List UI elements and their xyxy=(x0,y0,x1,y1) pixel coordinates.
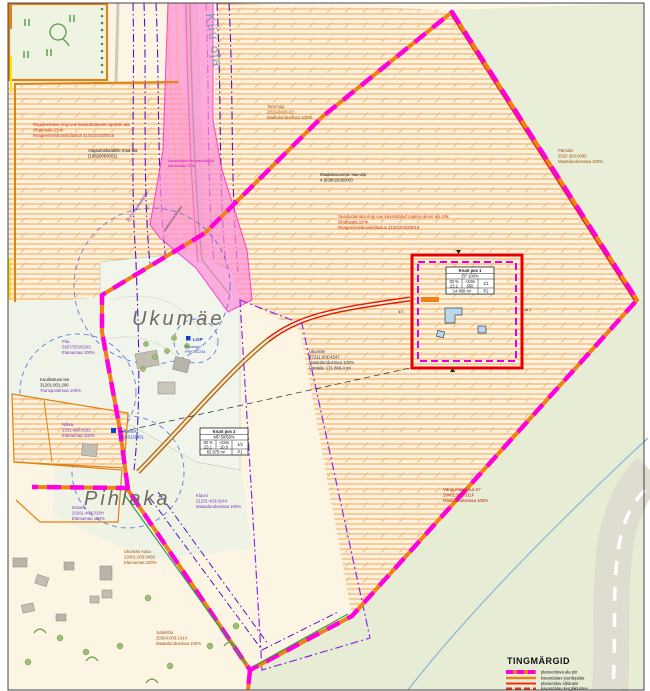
tammoja-1: Tammoja xyxy=(267,104,285,109)
ukumae-parcel-2: 97311:001:4547 xyxy=(309,355,340,360)
tree-symbol xyxy=(57,635,63,641)
edge-strip-orange xyxy=(8,3,12,29)
tammoja-2: 2819-0420-02 xyxy=(267,110,294,115)
measure-left: 4,0 xyxy=(398,309,404,314)
ukumae-label: Ukumäe xyxy=(132,308,224,330)
plan-map-page: LOP Puurkaev PRK001234 PUURK#1 PRK013145… xyxy=(0,0,650,691)
krunt1-subtitle: EP 100% xyxy=(462,274,479,279)
tree-symbol xyxy=(140,366,145,371)
krunt2-subtitle: MP 50/50% xyxy=(213,435,234,440)
jutilehtla-2: 29304:003:1414 xyxy=(156,636,188,641)
krunt2-c3: 1/2 xyxy=(237,442,243,447)
building xyxy=(64,562,74,570)
building xyxy=(100,566,112,580)
jutilehtla-1: Jutilehtla xyxy=(156,630,174,635)
tree-symbol xyxy=(25,659,31,665)
land-note-1: Maakasutuseta maa-ala xyxy=(320,172,366,177)
krunt2-area: 63 875 m² xyxy=(207,449,226,454)
vanga-1: Vängi maaüksus 57 xyxy=(443,487,481,492)
tree-symbol xyxy=(143,341,148,346)
dotura-2: 20291:403:018H xyxy=(72,511,104,516)
krunt1-code: P2 xyxy=(483,288,489,293)
vanga-3: Maatulundusmaa 100% xyxy=(443,498,488,503)
red-note-top-2: Ohutusala 23 m xyxy=(33,128,64,133)
planned-building xyxy=(436,330,444,337)
kuullastuse-2: 31201:001:206 xyxy=(40,383,69,388)
building xyxy=(102,590,112,598)
red-note-mid-1: Seadustamata ringi uue kavandatud rajati… xyxy=(338,214,449,219)
flare-label-2: laiendusala 12 m xyxy=(168,164,195,168)
tree-symbol xyxy=(207,643,213,649)
nolva-2: 2331:403:0181 xyxy=(62,428,91,433)
tree-symbol xyxy=(152,354,157,359)
substation-note-2: (19820063001) xyxy=(88,154,118,159)
tree-symbol xyxy=(233,623,239,629)
parnala-2: 2520 303:0085 xyxy=(558,154,587,159)
krunt2-code: P1 xyxy=(237,449,243,454)
nolva-1: Nõlva xyxy=(62,422,74,427)
road-edge xyxy=(116,3,118,84)
lop-label: LOP xyxy=(193,337,204,343)
pia-1: Piia xyxy=(62,339,70,344)
parnala-1: Pärnala xyxy=(558,148,573,153)
dotura-3: Elamumaa 100% xyxy=(72,516,105,521)
krunt1-c3: 1/1 xyxy=(483,281,489,286)
tree-symbol xyxy=(167,663,173,669)
road-stub-orange xyxy=(421,297,439,302)
krunt1-area: 14 800 m² xyxy=(453,288,472,293)
red-note-mid-3: Reageerimiskooskõlastus 4105/2020/0018 xyxy=(338,225,420,230)
red-note-mid-2: Ohutusala 10 m xyxy=(338,220,369,225)
krunt2-table: Krunt pos 2 MP 50/50% 30 % 23,1 +23m 10,… xyxy=(200,428,248,455)
legend-label-1: planeeritava ala piir xyxy=(541,670,578,675)
parnala-3: Maatulundusmaa 100% xyxy=(558,159,603,164)
building xyxy=(158,382,175,394)
puurk-label-2: PRK0131451 xyxy=(119,435,145,440)
kuullastuse-3: Transpordimaa 100% xyxy=(40,388,81,393)
ukumae-aasa-3: Elamumaa 100% xyxy=(124,560,157,565)
substation-note-1: Alajaamakaablite maa-ala xyxy=(88,148,138,153)
klaus-3: Maatulundusmaa 100% xyxy=(196,504,241,509)
tree-symbol xyxy=(83,649,89,655)
ukumae-aasa-2: 29301:003:0456 xyxy=(124,555,156,560)
planned-building xyxy=(478,326,486,333)
jutilehtla-3: Maatulundusmaa 100% xyxy=(156,641,201,646)
nolva-3: Elamumaa 100% xyxy=(62,433,95,438)
borehole-marker xyxy=(111,428,116,433)
tree-symbol xyxy=(164,348,169,353)
pia-2: 0957/333/0203 xyxy=(62,345,91,350)
klaus-1: Klausi xyxy=(196,493,208,498)
borehole-marker xyxy=(186,336,191,341)
measure-right: 44,1 xyxy=(524,307,533,312)
lop-sub-2: PRK001234 xyxy=(185,350,205,354)
flare-label-1: kavandatava tee maa-ala piir xyxy=(168,159,215,163)
dotura-1: Dotura xyxy=(72,505,86,510)
krunt2-title: Krunt pos 2 xyxy=(213,429,236,434)
building xyxy=(56,614,66,621)
tree-symbol xyxy=(145,595,151,601)
land-note-2: 4 (63802630000) xyxy=(320,178,353,183)
pihlaka-label: Pihlaka xyxy=(84,488,171,510)
krunt1-title: Krunt pos 1 xyxy=(459,268,482,273)
parcel-top-left xyxy=(9,4,107,80)
detail-plan-map: LOP Puurkaev PRK001234 PUURK#1 PRK013145… xyxy=(0,0,650,691)
ukumae-parcel-1: Ukumäe xyxy=(309,349,326,354)
tammoja-3: Maatulundusmaa 100% xyxy=(267,115,312,120)
puurk-label-1: PUURK#1 xyxy=(119,429,139,434)
legend-title: TINGMÄRGID xyxy=(507,656,570,666)
ukumae-parcel-3: Maatulundusmaa 100% xyxy=(309,360,354,365)
lop-sub-1: Puurkaev xyxy=(185,345,201,349)
klaus-2: 21201:403:0244 xyxy=(196,499,228,504)
building xyxy=(90,596,99,603)
legend-label-2: kavandatav juurdepääs xyxy=(541,676,584,681)
tree-symbol xyxy=(117,643,123,649)
red-note-top-3: Reageerimiskooskõlastus 4105/2020/0018 xyxy=(33,133,115,138)
ukumae-aasa-1: Ukumäe Aasa xyxy=(124,549,151,554)
tree-symbol xyxy=(171,335,176,340)
ukumae-parcel-4: Pindala: 171 860,4 m² xyxy=(309,366,352,371)
pia-3: Elamumaa 100% xyxy=(62,350,95,355)
building xyxy=(13,558,27,567)
red-note-top-1: Reguleeritava ringi uue kavandatavate ra… xyxy=(33,122,130,127)
krunt1-table: Krunt pos 1 EP 100% 30 % 23,1 +23m 550 1… xyxy=(446,267,494,294)
vanga-2: 29401:303:031F xyxy=(443,493,475,498)
kuullastuse-1: Kuullastuse tee xyxy=(40,377,70,382)
building xyxy=(81,443,97,457)
